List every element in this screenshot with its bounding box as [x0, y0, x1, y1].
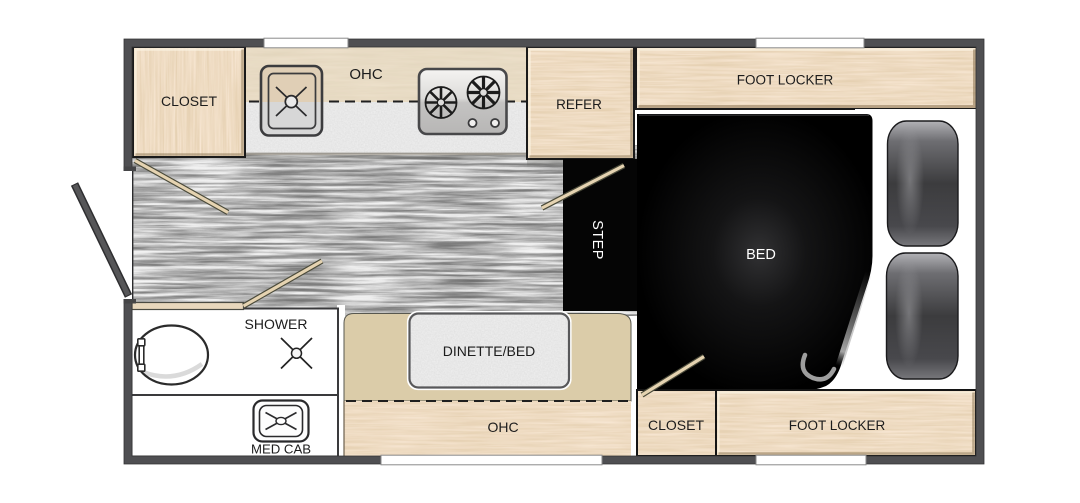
svg-text:CLOSET: CLOSET [648, 417, 704, 433]
svg-text:OHC: OHC [487, 419, 518, 435]
svg-text:BED: BED [746, 247, 776, 263]
svg-text:REFER: REFER [556, 97, 602, 112]
svg-text:DINETTE/BED: DINETTE/BED [443, 343, 536, 359]
svg-text:STEP: STEP [589, 220, 605, 260]
svg-text:CLOSET: CLOSET [161, 93, 217, 109]
svg-text:MED CAB: MED CAB [251, 442, 311, 457]
svg-text:SHOWER: SHOWER [245, 316, 308, 332]
svg-text:FOOT LOCKER: FOOT LOCKER [737, 73, 834, 88]
svg-text:FOOT LOCKER: FOOT LOCKER [789, 418, 886, 433]
svg-text:OHC: OHC [349, 66, 383, 83]
